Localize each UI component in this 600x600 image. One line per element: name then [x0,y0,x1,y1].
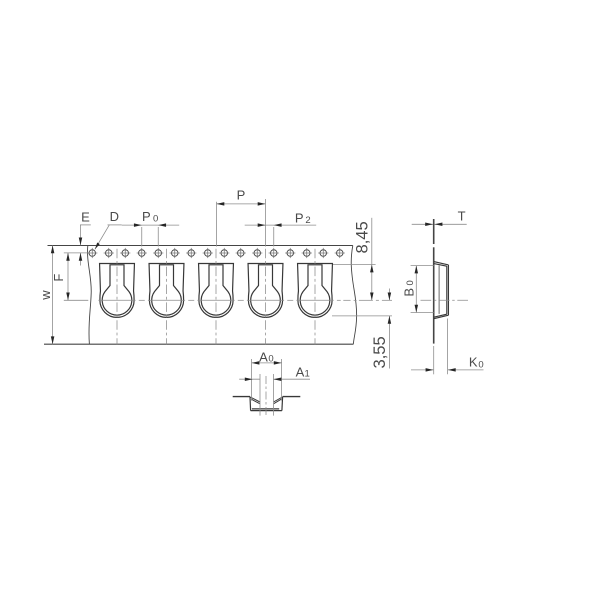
svg-text:0: 0 [478,359,483,370]
svg-text:0: 0 [153,214,158,225]
svg-text:P: P [237,187,246,202]
svg-text:w: w [38,290,53,301]
svg-text:T: T [458,209,466,224]
svg-text:8,45: 8,45 [353,221,371,253]
svg-text:A: A [296,364,305,379]
svg-text:F: F [51,274,66,282]
svg-text:3,55: 3,55 [371,336,389,368]
svg-text:P: P [295,211,304,226]
svg-text:P: P [142,209,151,224]
svg-text:D: D [110,209,119,224]
svg-text:K: K [469,355,478,370]
svg-text:0: 0 [405,280,416,285]
svg-text:A: A [259,349,268,364]
svg-text:2: 2 [305,215,310,226]
svg-text:B: B [401,288,416,297]
svg-text:1: 1 [305,369,310,380]
svg-text:E: E [81,210,90,225]
